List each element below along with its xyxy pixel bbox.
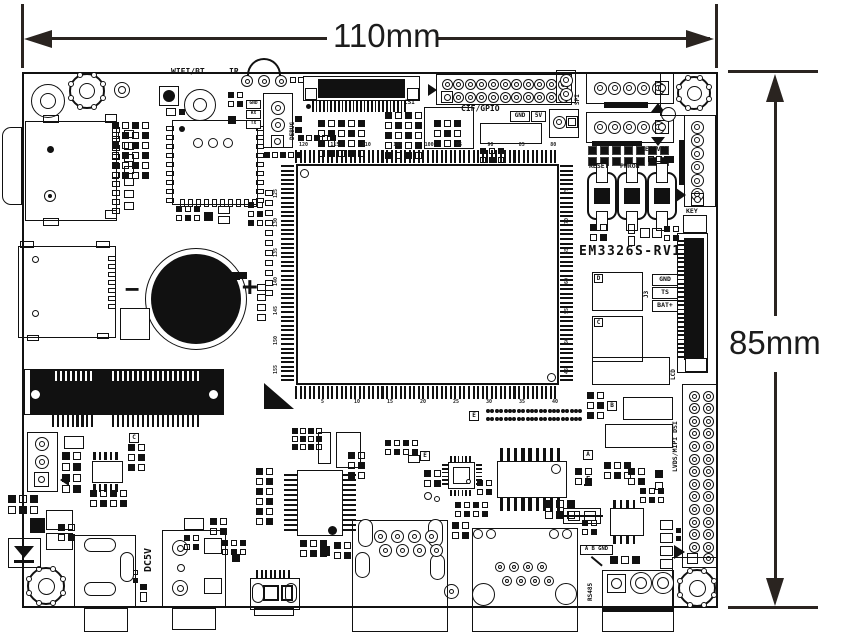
dc-jack-slot [120,552,134,582]
csi-comb [353,100,355,112]
spi-pin [641,85,647,91]
rj45-pin [505,579,509,583]
pin-comb [613,500,616,508]
pad [193,544,199,550]
cpu-pins-right [560,275,573,277]
pad-cluster [318,120,325,127]
pad [248,202,254,208]
pad-dot [552,417,556,421]
cpu-pins-left [281,311,294,313]
cpu-pins-right [560,352,573,354]
pin-comb [469,490,471,496]
memory-notch [31,390,40,399]
castellation [124,190,134,198]
cpu-pins-top [473,150,475,163]
usb-pin [412,534,417,539]
pad [222,540,228,546]
memory-comb [192,415,194,427]
pad [486,489,492,495]
jumper-pad [612,146,621,155]
pin-comb [442,472,448,474]
cpu-pins-top [477,150,479,163]
pad [628,478,635,485]
ref-mark-e2: E [469,411,479,421]
cpu-pins-bottom [550,386,552,399]
pad-dot [539,417,543,421]
cpu-pin-number: 20 [420,400,426,405]
tssop-body [297,470,343,536]
pad-dot [499,417,503,421]
cpu-pin-number: 65 [565,248,570,254]
pad [308,436,314,442]
pad [194,215,200,221]
mount-satellite-hole [701,602,707,608]
memory-comb [172,371,174,381]
memory-comb [132,415,134,427]
pad-cluster [358,130,365,137]
wifi-castellation [166,180,174,185]
hole [562,529,572,539]
pad [272,152,278,158]
pin-comb [284,509,297,511]
pad-dot [543,417,547,421]
pad [288,152,294,158]
cpu-pins-top [550,150,552,163]
memory-comb [182,371,184,381]
pad-dot [517,409,521,413]
pad-dot [504,409,508,413]
cif-gpio-pin [537,82,542,87]
lcd-comb [678,270,684,272]
pad [257,211,263,217]
component-outline [140,592,147,602]
component-outline [64,436,84,449]
memory-comb [72,415,74,427]
pad-column [265,220,273,226]
reset-button-plunger [594,188,610,204]
jumper-pad [624,146,633,155]
wifi-antenna-pad [163,90,175,102]
pad [434,480,441,487]
pad [308,444,314,450]
wifi-castellation [166,198,174,203]
cpu-pin-number: 70 [565,218,570,224]
cpu-pins-top [445,150,447,163]
memory-comb [70,371,72,381]
pad [676,536,681,541]
memory-comb [65,371,67,381]
cpu-pins-left [281,316,294,318]
cpu-pins-bottom [318,386,320,399]
csi-comb [342,100,344,112]
pad [185,215,191,221]
lcd-comb [678,334,684,336]
pad [184,535,190,541]
castellation [112,208,120,214]
cif-gpio-pin [456,82,461,87]
cpu-pins-left [281,338,294,340]
microusb-comb [279,570,281,578]
pad-cluster [385,132,392,139]
pad [292,444,298,450]
wifi-castellation [166,171,174,176]
uart-gnd-label: GND [246,100,261,109]
memory-comb [162,371,164,381]
pad [591,520,597,526]
mount-satellite-hole [60,590,66,596]
wifi-castellation [256,162,264,167]
cpu-pins-bottom [300,386,302,399]
spi-pin [597,85,603,91]
component-outline [290,77,296,83]
pad [489,148,495,154]
memory-comb [167,415,169,427]
sd-castellation [108,272,116,277]
lvds-label: LVDS/MIPI DSI [672,421,679,472]
cpu-pins-top [432,150,434,163]
lcd-comb [678,330,684,332]
cpu-pins-bottom [309,386,311,399]
pin-comb [284,529,297,531]
lvds-pin [692,431,697,436]
pin-comb [620,500,623,508]
hole [694,196,701,203]
wifi-castellation [204,199,209,207]
pad [320,546,330,556]
pad [220,528,227,535]
csi-comb [319,100,321,112]
memory-comb [162,415,164,427]
pad [640,497,646,503]
lcd-comb [678,339,684,341]
memory-comb [60,371,62,381]
pad [300,444,306,450]
mounting-hole [38,578,55,595]
cpu-pin-number: 155 [274,365,279,374]
pad-dot [570,409,574,413]
dc5v-label: DC5V [144,548,154,572]
component-outline [97,333,109,339]
debug-pin [275,122,281,128]
pad-dot [521,417,525,421]
pad [316,444,322,450]
csi-comb [330,100,332,112]
cif-gpio-pin [468,95,473,100]
pad [176,215,182,221]
cpu-pins-left [281,348,294,350]
cpu-pins-left [281,334,294,336]
rj45-pin [540,565,544,569]
component-outline [204,538,222,554]
mounting-hole [689,580,706,597]
hole [32,256,39,263]
cpu-pins-top [532,150,534,163]
cpu-pin-number: 40 [552,400,558,405]
pad [344,552,351,559]
pad-cluster [122,122,129,129]
pad [462,532,469,539]
cpu-pins-right [560,288,573,290]
lcd-comb [678,261,684,263]
cpu-pins-top [377,150,379,163]
hole [466,479,471,484]
wifi-castellation [166,153,174,158]
memory-comb [152,415,154,427]
pin-comb [528,448,531,461]
castellation [124,178,134,186]
lcd-label: LCD [671,369,677,380]
castellation [112,145,120,151]
cpu-pins-top [331,150,333,163]
left-io-connector-tab [2,127,22,205]
pad-cluster [405,142,412,149]
cpu-pins-bottom [463,386,465,399]
memory-comb [177,371,179,381]
pad [545,511,553,519]
pad-dot [578,409,582,413]
pad-column [265,290,273,296]
pad [210,272,217,279]
cpu-pins-left [281,174,294,176]
cpu-pins-right [560,233,573,235]
cpu-pins-top [418,150,420,163]
cpu-pins-bottom [509,386,511,399]
cpu-pins-bottom [432,386,434,399]
diode-bar [14,560,34,563]
pad [58,524,65,531]
pad [316,428,322,434]
cpu-pins-left [281,233,294,235]
lcd-comb [678,317,684,319]
cpu-pins-bottom [409,386,411,399]
pad [480,148,486,154]
lvds-pin [706,419,711,424]
cpu-pins-top [536,150,538,163]
pin-comb [343,479,356,481]
component-outline [27,335,39,341]
lcd-comb [678,321,684,323]
ir-pin [245,79,250,84]
dot [328,526,337,535]
cpu-pins-right [560,348,573,350]
pwron-label: PWRON [620,163,640,170]
pad [19,506,27,514]
pad [638,478,645,485]
pad [292,436,298,442]
pad-cluster [385,142,392,149]
cpu-pins-right [560,170,573,172]
cpu-pins-top [504,150,506,163]
lcd-comb [678,291,684,293]
hole [434,496,440,502]
pin-comb [458,490,460,496]
wifi-castellation [256,189,264,194]
pad [455,502,461,508]
pad [582,520,588,526]
cpu-pin-number: 125 [274,189,279,198]
pad [394,449,400,455]
cpu-pins-right [560,202,573,204]
pad-dot [574,417,578,421]
pin-comb [343,509,356,511]
hole [563,77,569,83]
pad-cluster [73,463,81,471]
memory-comb [117,415,119,427]
component-outline [660,533,673,543]
pad-cluster [358,120,365,127]
pin-comb [284,494,297,496]
lcd-connector [684,238,704,360]
microusb-comb [274,570,276,578]
pad [664,235,670,241]
ref-mark-c2: C [594,318,603,327]
dot [179,126,185,132]
pad [462,522,469,529]
pad-cluster [338,130,345,137]
pin-comb [284,504,297,506]
uart-rx-label: RX [246,110,261,119]
pad [256,498,263,505]
pad-column [265,230,273,236]
pin-comb [343,519,356,521]
pad [403,440,409,446]
pad [19,495,27,503]
memory-comb [157,371,159,381]
pad [582,529,588,535]
cpu-pins-top [436,150,438,163]
lvds-pin [692,494,697,499]
pad-column [265,190,273,196]
pad [308,428,314,434]
cpu-pins-right [560,320,573,322]
pin-comb [110,452,113,460]
pad [575,468,582,475]
pad [348,472,355,479]
pad [280,152,286,158]
pin-comb [454,490,456,496]
cpu-pins-bottom [436,386,438,399]
lcd-comb [678,326,684,328]
usb-pin [429,534,434,539]
pad [385,449,391,455]
cpu-pins-left [281,297,294,299]
rj45-mount [472,583,495,606]
memory-comb [122,371,124,381]
memory-connector-end [24,369,31,415]
pad [604,102,648,108]
pin-comb [557,448,560,461]
pad-cluster [385,112,392,119]
castellation [112,136,120,142]
pad [545,500,553,508]
hole [612,124,618,130]
memory-comb [62,415,64,427]
hole [177,564,185,572]
pad [482,502,488,508]
hole [563,91,569,97]
csi-label: CSI [404,100,415,106]
lvds-pin [706,457,711,462]
lvds-pin [706,545,711,550]
memory-comb [80,371,82,381]
pin-comb [343,504,356,506]
pad-dot [556,417,560,421]
cpu-pins-left [281,343,294,345]
cif-gpio-pin [491,82,496,87]
wifi-castellation [236,199,241,207]
rj45-pin [498,565,502,569]
pin-comb [528,498,531,511]
component-outline [683,215,707,233]
pad [334,542,341,549]
cpu-pins-left [281,352,294,354]
mount-satellite-hole [68,95,74,101]
pad [597,412,604,419]
castellation [112,154,120,160]
cpu-pin-number: 35 [519,400,525,405]
cpu-pins-left [281,224,294,226]
recover-label: RECOVER [641,146,668,153]
cpu-pins-top [509,150,511,163]
via-hole [449,589,454,594]
pad-column [265,240,273,246]
pin-comb [343,489,356,491]
cpu-pins-bottom [331,386,333,399]
cpu-pins-top [541,150,543,163]
pin-comb [465,490,467,496]
mount-satellite-hole [91,104,97,110]
key-pin [694,151,700,157]
pin-comb [284,519,297,521]
component-outline [660,520,673,530]
rs485-label: RS485 [588,583,594,601]
memory-comb [157,415,159,427]
pad-cluster [338,120,345,127]
cpu-pins-top [345,150,347,163]
pin-comb [442,464,448,466]
pad [482,511,488,517]
pad [614,472,621,479]
rs485-pins-label: A B GND [580,545,613,555]
lcd-comb [678,356,684,358]
pad [204,212,213,221]
cpu-pin-number: 45 [565,368,570,374]
mount-satellite-hole [36,600,42,606]
microusb-comb [270,570,272,578]
cpu-pins-bottom [491,386,493,399]
pad [110,500,117,507]
pad [222,549,228,555]
pad-column [265,270,273,276]
cpu-pins-top [527,150,529,163]
audio-jack-body [172,608,216,630]
pin-comb [507,448,510,461]
pad-cluster [348,120,355,127]
pad [68,524,75,531]
component-outline [43,115,59,123]
cpu-pins-left [281,261,294,263]
pad [306,135,312,141]
pad-cluster [142,172,149,179]
micro-usb-shell [254,608,294,616]
cpu-pins-left [281,361,294,363]
mounting-hole [193,98,207,112]
cpu-pins-bottom [418,386,420,399]
rs485-terminal-body [602,611,674,632]
lcd-comb [678,274,684,276]
csi-comb [367,100,369,112]
wifi-bt-label: WIFI/BT [171,68,205,76]
